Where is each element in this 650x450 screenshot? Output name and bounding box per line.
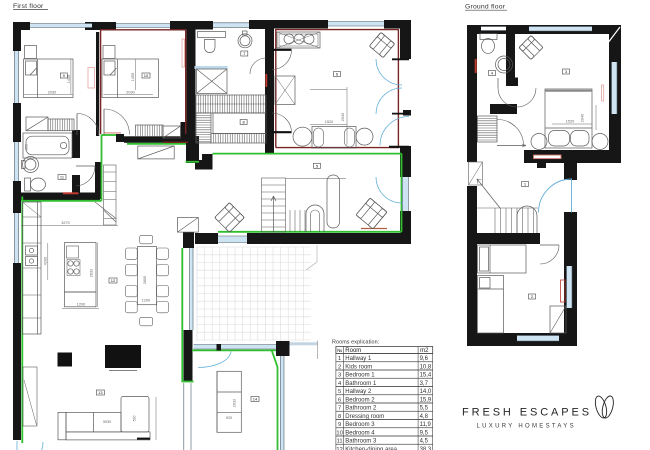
svg-text:9,6: 9,6 [420, 356, 429, 362]
svg-text:Ground floor: Ground floor [465, 4, 506, 11]
svg-text:Bedroom 1: Bedroom 1 [345, 373, 375, 379]
svg-text:2632: 2632 [90, 269, 94, 277]
svg-text:FRESH ESCAPES: FRESH ESCAPES [462, 407, 592, 419]
svg-text:Bedroom 3: Bedroom 3 [345, 422, 375, 428]
svg-text:920: 920 [226, 416, 232, 420]
svg-text:1520: 1520 [325, 120, 333, 124]
svg-text:2040: 2040 [341, 113, 345, 121]
svg-text:850: 850 [25, 144, 29, 150]
svg-text:9,5: 9,5 [420, 430, 429, 436]
svg-text:Rooms explication:: Rooms explication: [332, 340, 379, 346]
svg-text:2030: 2030 [126, 90, 134, 94]
svg-text:7: 7 [338, 406, 341, 412]
svg-text:6: 6 [338, 397, 341, 403]
svg-text:Bathroom 1: Bathroom 1 [345, 381, 377, 387]
svg-text:11: 11 [337, 439, 343, 445]
svg-text:15,4: 15,4 [420, 373, 432, 379]
svg-text:8: 8 [338, 414, 341, 420]
svg-text:2: 2 [338, 364, 341, 370]
svg-text:3,7: 3,7 [420, 381, 429, 387]
svg-text:10: 10 [144, 73, 149, 78]
svg-text:10,8: 10,8 [420, 364, 432, 370]
svg-text:Kids room: Kids room [345, 364, 372, 370]
svg-text:Bathroom 3: Bathroom 3 [345, 439, 377, 445]
svg-text:11,9: 11,9 [420, 422, 432, 428]
svg-text:4,5: 4,5 [420, 439, 429, 445]
svg-text:4,8: 4,8 [420, 414, 429, 420]
svg-text:Bedroom 4: Bedroom 4 [345, 430, 375, 436]
svg-text:Hallway 1: Hallway 1 [345, 356, 372, 362]
svg-text:Dressing room: Dressing room [345, 414, 384, 420]
svg-text:1520: 1520 [566, 120, 574, 124]
svg-text:5,5: 5,5 [420, 406, 429, 412]
svg-text:№: № [337, 348, 342, 354]
svg-text:LUXURY HOMESTAYS: LUXURY HOMESTAYS [477, 423, 576, 429]
svg-text:10: 10 [336, 430, 342, 436]
svg-text:13: 13 [98, 390, 103, 395]
svg-text:15,9: 15,9 [420, 397, 432, 403]
svg-text:14,0: 14,0 [420, 389, 432, 395]
svg-text:2600: 2600 [143, 276, 147, 284]
svg-text:14: 14 [253, 397, 258, 402]
svg-text:Bathroom 2: Bathroom 2 [345, 406, 377, 412]
svg-text:First floor: First floor [13, 3, 44, 10]
svg-text:1: 1 [338, 356, 341, 362]
svg-text:5: 5 [338, 389, 341, 395]
svg-text:2032: 2032 [233, 399, 237, 407]
svg-text:Hallway 2: Hallway 2 [345, 389, 372, 395]
svg-text:2030: 2030 [48, 90, 56, 94]
svg-text:1200: 1200 [142, 298, 150, 302]
svg-text:530: 530 [132, 416, 136, 422]
svg-text:9: 9 [338, 422, 341, 428]
svg-text:12: 12 [111, 278, 116, 283]
svg-text:3930: 3930 [103, 420, 111, 424]
svg-text:3: 3 [338, 373, 341, 379]
svg-text:2040: 2040 [581, 114, 585, 122]
svg-text:4200: 4200 [44, 257, 48, 265]
svg-text:1455: 1455 [131, 73, 135, 81]
svg-text:Bedroom 2: Bedroom 2 [345, 397, 375, 403]
svg-text:3270: 3270 [61, 221, 69, 225]
svg-text:1200: 1200 [77, 302, 85, 306]
svg-text:1455: 1455 [67, 75, 71, 83]
